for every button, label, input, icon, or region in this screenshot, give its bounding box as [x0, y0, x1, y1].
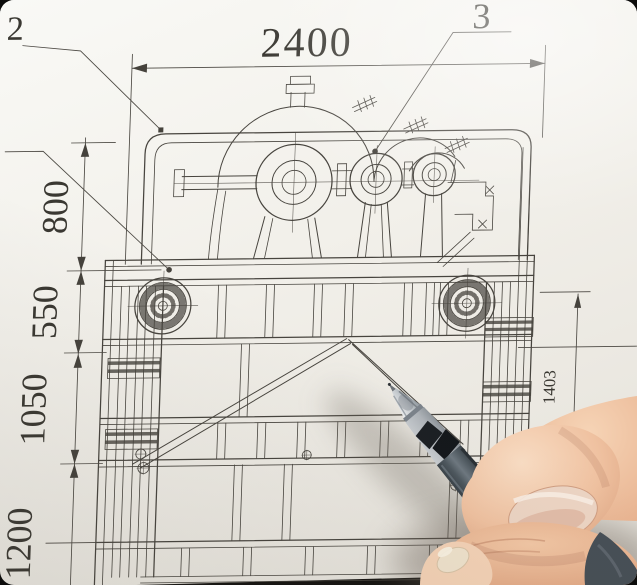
photo-of-engineering-drawing: 2400 800 550 1050 1200 1403 2 3	[0, 0, 637, 585]
hand	[420, 396, 637, 585]
hand-and-pen	[0, 0, 637, 585]
